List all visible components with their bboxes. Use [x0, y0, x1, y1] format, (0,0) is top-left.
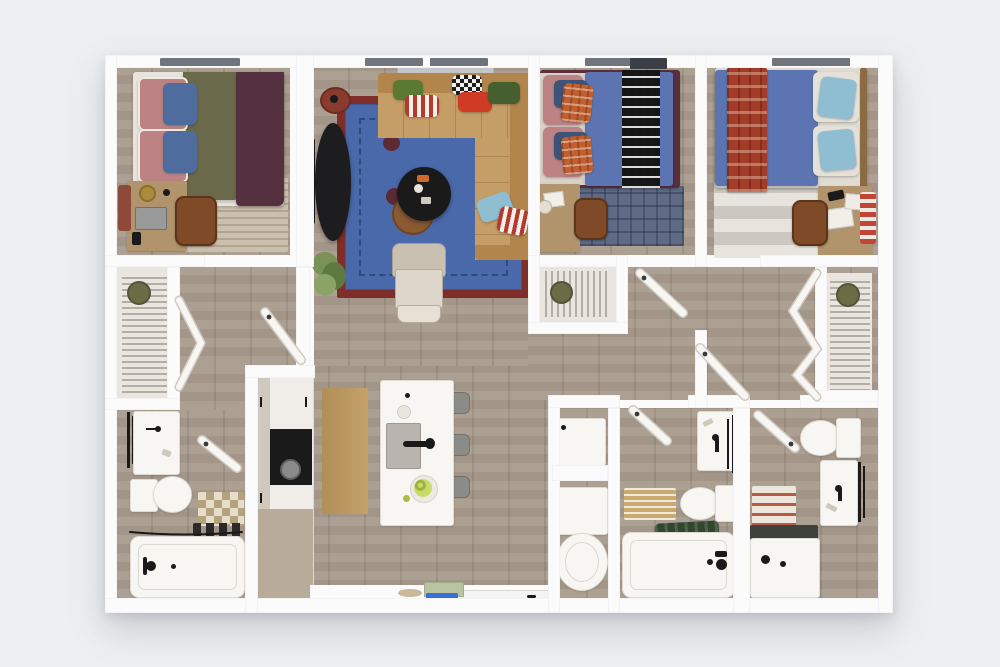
door-bedroom2	[640, 273, 683, 313]
door-bedroom2-handle	[642, 276, 647, 281]
apartment-plan	[105, 55, 893, 613]
door-bedroom3-handle	[703, 352, 708, 357]
door-bedroom1	[265, 312, 301, 360]
door-bathroom1-handle	[204, 442, 209, 447]
doors-overlay	[105, 55, 893, 613]
floorplan-image	[0, 0, 1000, 667]
tub1-curtain-rod	[130, 532, 242, 535]
door-bathroom2-handle	[635, 412, 640, 417]
door-bathroom3-handle	[789, 442, 794, 447]
door-bedroom1-handle	[267, 315, 272, 320]
